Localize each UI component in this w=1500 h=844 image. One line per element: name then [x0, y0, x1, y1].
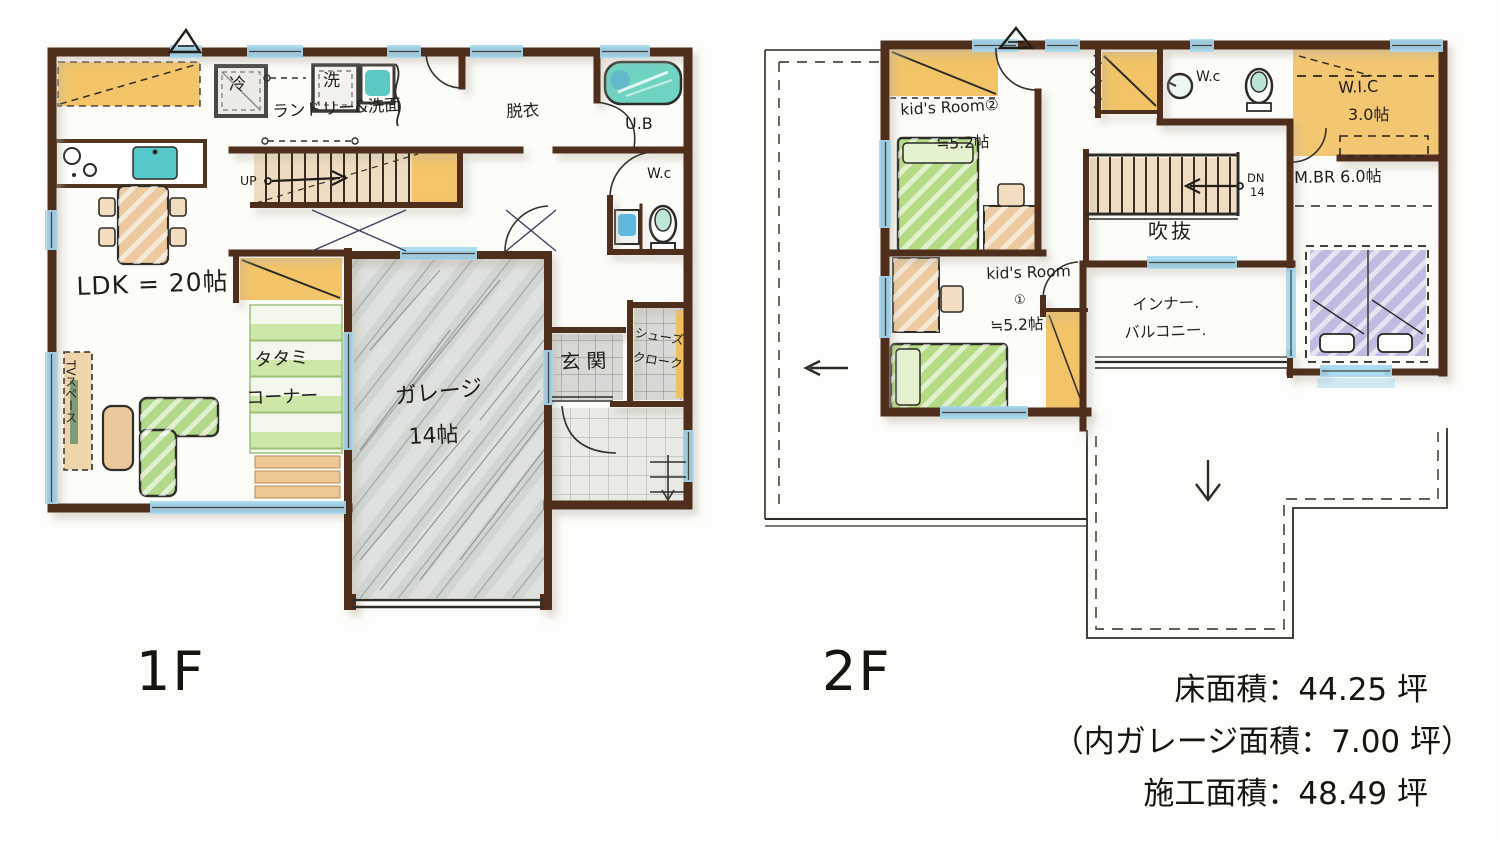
garage-area-text: （内ガレージ面積：7.00 坪） [1010, 716, 1472, 768]
label-stairs-dn: DN [1247, 172, 1264, 184]
flow-arrow-left [806, 361, 848, 375]
wic-floor [1293, 48, 1443, 156]
room-label-kids1-3: ≒5.2帖 [990, 316, 1044, 334]
lounge-chair [103, 406, 133, 470]
room-label-kids1-1: kid's Room [986, 263, 1071, 282]
construction-area-text: 施工面積：48.49 坪 [1010, 768, 1472, 820]
room-label-balcony-1: インナー. [1132, 295, 1199, 314]
area-summary: 床面積：44.25 坪 （内ガレージ面積：7.00 坪） 施工面積：48.49 … [1010, 664, 1472, 820]
label-refrigerator: 冷 [229, 77, 246, 95]
room-label-master: M.BR 6.0帖 [1294, 168, 1382, 186]
kitchen-island [55, 141, 205, 186]
room-label-tv-space: TVスペース [64, 360, 77, 490]
mbr-pillow [1378, 334, 1412, 352]
kids1-chair [941, 286, 963, 312]
floor2-title: 2F [822, 644, 891, 701]
tatami-mats [250, 305, 342, 453]
floor2-plan [765, 28, 1447, 638]
floorplan-canvas: LDK = 20帖 タタミ コーナー ガレージ 14帖 玄関 シューズ クローク… [0, 0, 1500, 844]
room-label-void: 吹抜 [1148, 221, 1194, 242]
room-label-wc-1f: W.c [647, 167, 671, 182]
room-label-undressing: 脱衣 [506, 102, 540, 120]
room-label-balcony-2: バルコニー. [1124, 322, 1207, 341]
room-label-wc-2f: W.c [1196, 70, 1220, 85]
room-label-garage-2: 14帖 [408, 423, 459, 449]
floor1-title: 1F [136, 644, 205, 701]
stairs1-landing [412, 153, 458, 203]
kids2-chair [998, 184, 1024, 206]
label-stairs-up: UP [240, 174, 257, 187]
floor1-plan [45, 30, 694, 610]
room-label-entrance: 玄関 [560, 350, 613, 373]
room-label-kids2-2: ≒5.2帖 [936, 134, 990, 152]
room-label-unit-bath: U.B [625, 116, 653, 133]
tatami-shelf [255, 456, 340, 498]
floor-area-text: 床面積：44.25 坪 [1010, 664, 1472, 716]
room-label-tatami-1: タタミ [254, 349, 309, 371]
label-washer: 洗 [323, 73, 340, 91]
garage-shutter [352, 600, 544, 607]
label-stairs-dn-count: 14 [1250, 186, 1265, 198]
room-label-kids1-2: ① [1014, 294, 1026, 308]
room-label-wic-1: W.I.C [1338, 79, 1379, 97]
porch-floor [552, 408, 686, 503]
mbr-pillow [1320, 334, 1354, 352]
kitchen-counter [58, 62, 200, 106]
room-label-wic-2: 3.0帖 [1348, 107, 1389, 124]
room-label-tatami-2: コーナー [246, 387, 319, 408]
kids1-pillow [896, 349, 920, 405]
room-label-ldk: LDK = 20帖 [76, 269, 229, 301]
wc-basin-2f [1168, 74, 1192, 98]
flow-arrow-down [1196, 460, 1220, 500]
